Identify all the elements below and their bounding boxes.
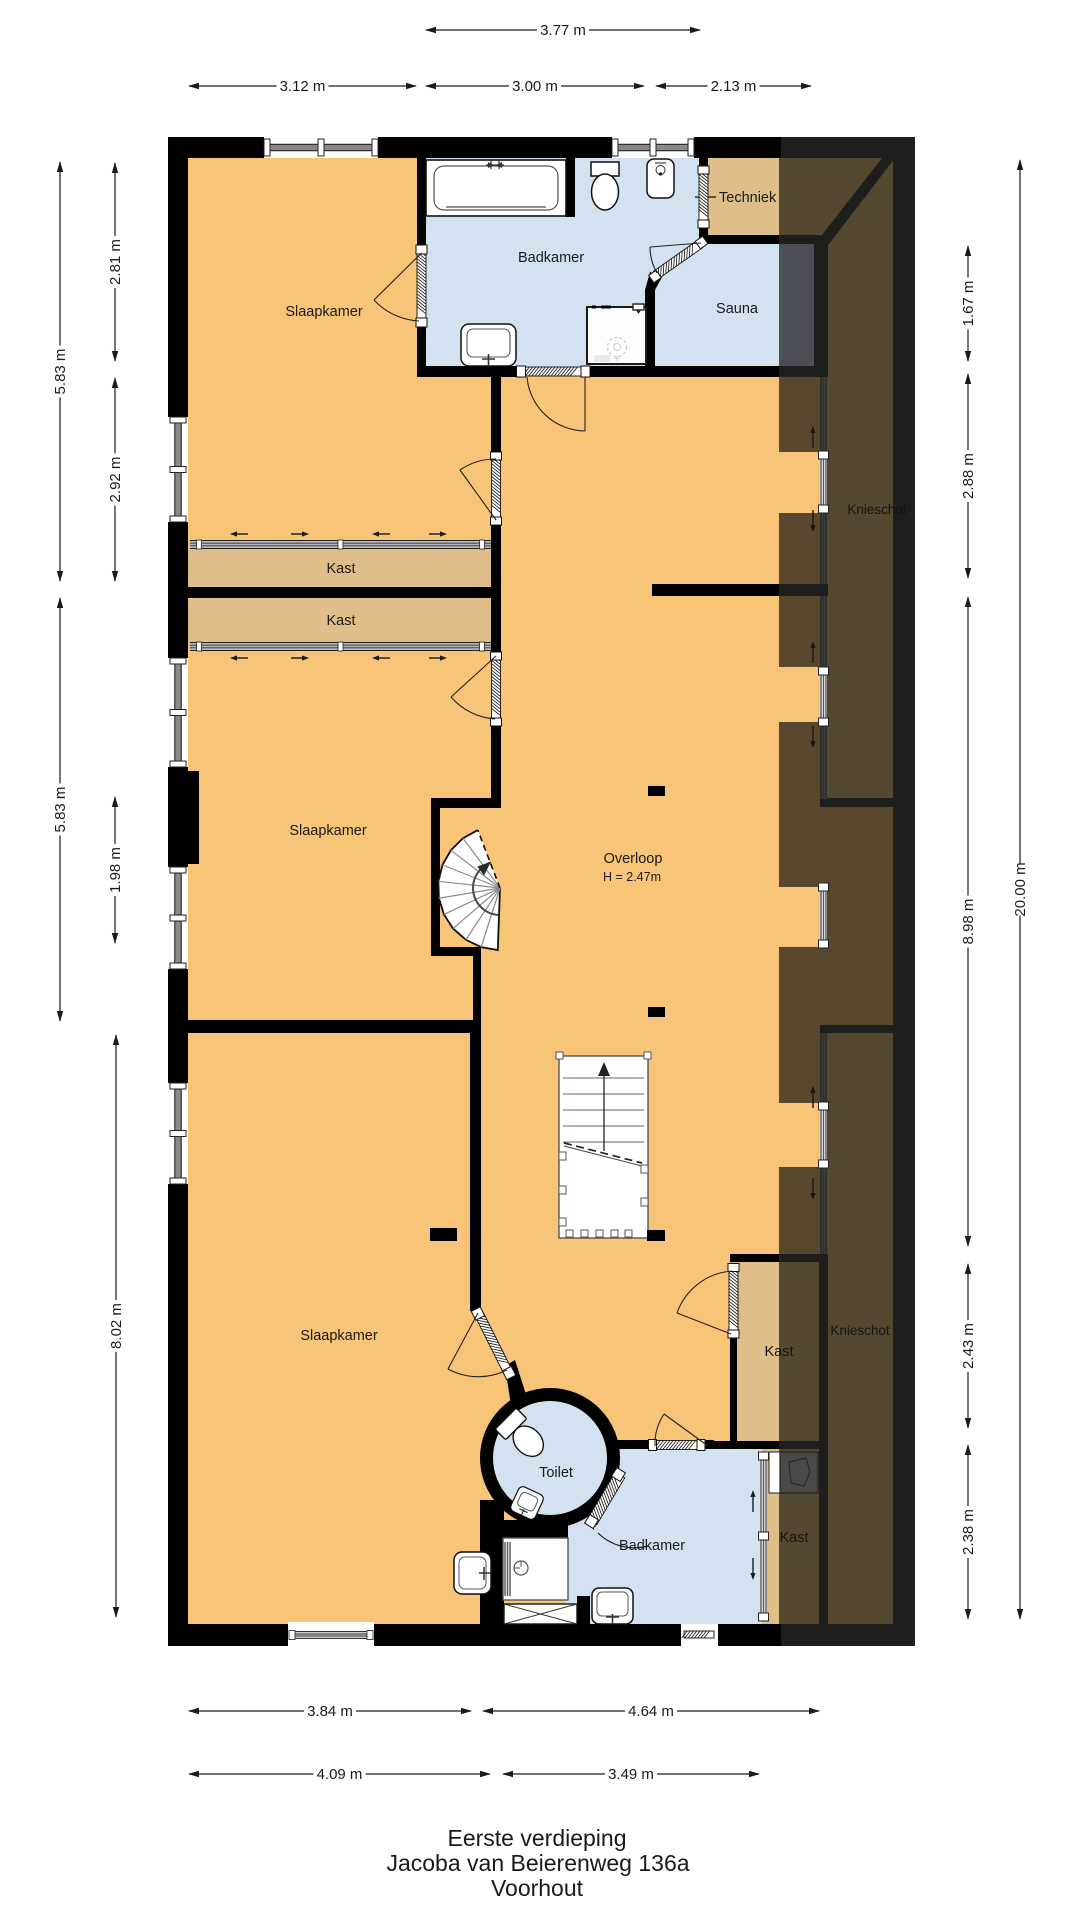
svg-text:3.00 m: 3.00 m (512, 78, 558, 95)
svg-text:Jacoba van Beierenweg 136a: Jacoba van Beierenweg 136a (386, 1850, 689, 1876)
svg-text:2.81 m: 2.81 m (107, 239, 124, 285)
svg-text:3.84 m: 3.84 m (307, 1703, 353, 1720)
svg-text:2.38 m: 2.38 m (960, 1509, 977, 1555)
svg-text:Eerste verdieping: Eerste verdieping (448, 1825, 627, 1851)
svg-text:5.83 m: 5.83 m (52, 787, 69, 833)
svg-text:2.43 m: 2.43 m (960, 1323, 977, 1369)
svg-text:2.92 m: 2.92 m (107, 457, 124, 503)
svg-text:3.12 m: 3.12 m (280, 78, 326, 95)
svg-text:1.98 m: 1.98 m (107, 847, 124, 893)
svg-text:5.83 m: 5.83 m (52, 349, 69, 395)
svg-text:8.98 m: 8.98 m (960, 899, 977, 945)
svg-text:Kast: Kast (326, 613, 355, 629)
svg-text:8.02 m: 8.02 m (108, 1303, 125, 1349)
svg-text:Sauna: Sauna (716, 301, 759, 317)
svg-text:Knieschot: Knieschot (830, 1323, 890, 1338)
svg-text:Slaapkamer: Slaapkamer (300, 1328, 378, 1344)
svg-text:Knieschot: Knieschot (847, 502, 907, 517)
svg-text:Badkamer: Badkamer (518, 250, 584, 266)
svg-text:Badkamer: Badkamer (619, 1538, 685, 1554)
svg-text:Kast: Kast (764, 1344, 793, 1360)
svg-text:Overloop: Overloop (604, 851, 663, 867)
svg-text:Techniek: Techniek (719, 190, 777, 206)
svg-text:Voorhout: Voorhout (491, 1875, 584, 1901)
svg-text:Slaapkamer: Slaapkamer (285, 304, 363, 320)
svg-text:3.77 m: 3.77 m (540, 22, 586, 39)
svg-text:Kast: Kast (326, 561, 355, 577)
svg-text:2.88 m: 2.88 m (960, 453, 977, 499)
svg-text:1.67 m: 1.67 m (960, 281, 977, 327)
svg-text:Slaapkamer: Slaapkamer (289, 823, 367, 839)
svg-text:Toilet: Toilet (539, 1465, 573, 1481)
svg-text:20.00 m: 20.00 m (1012, 862, 1029, 916)
svg-text:Kast: Kast (779, 1530, 808, 1546)
svg-text:3.49 m: 3.49 m (608, 1766, 654, 1783)
svg-text:2.13 m: 2.13 m (711, 78, 757, 95)
svg-text:4.64 m: 4.64 m (628, 1703, 674, 1720)
svg-text:4.09 m: 4.09 m (317, 1766, 363, 1783)
svg-text:H = 2.47m: H = 2.47m (603, 870, 661, 884)
